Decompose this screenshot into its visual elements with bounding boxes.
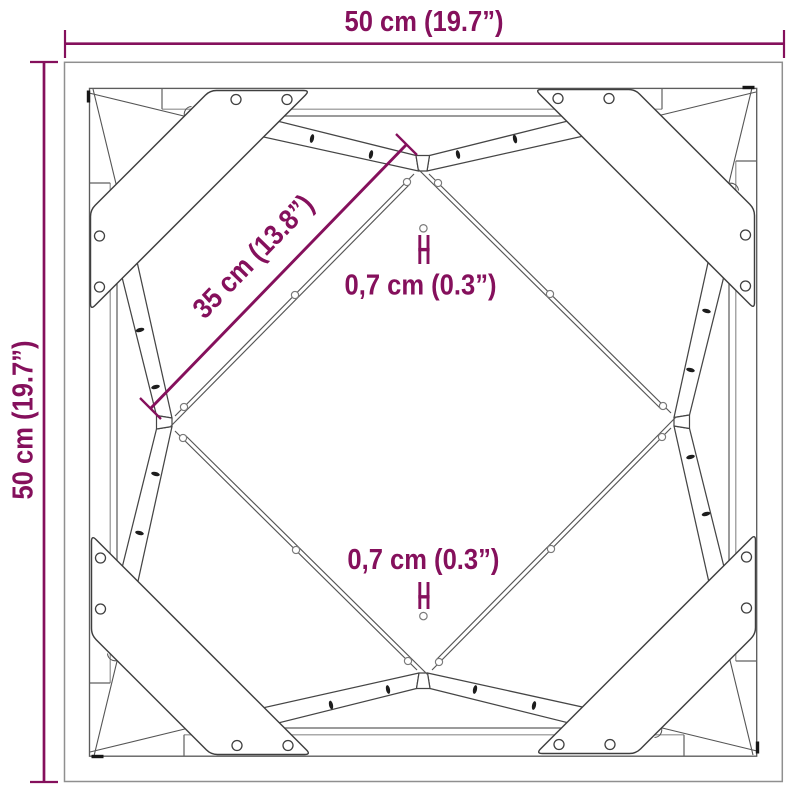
svg-text:50 cm (19.7”): 50 cm (19.7”) <box>8 341 40 500</box>
svg-text:35 cm (13.8”): 35 cm (13.8”) <box>187 189 321 325</box>
svg-text:0,7 cm (0.3”): 0,7 cm (0.3”) <box>345 270 497 302</box>
svg-text:0,7 cm (0.3”): 0,7 cm (0.3”) <box>347 544 499 576</box>
svg-text:50 cm (19.7”): 50 cm (19.7”) <box>345 6 504 38</box>
